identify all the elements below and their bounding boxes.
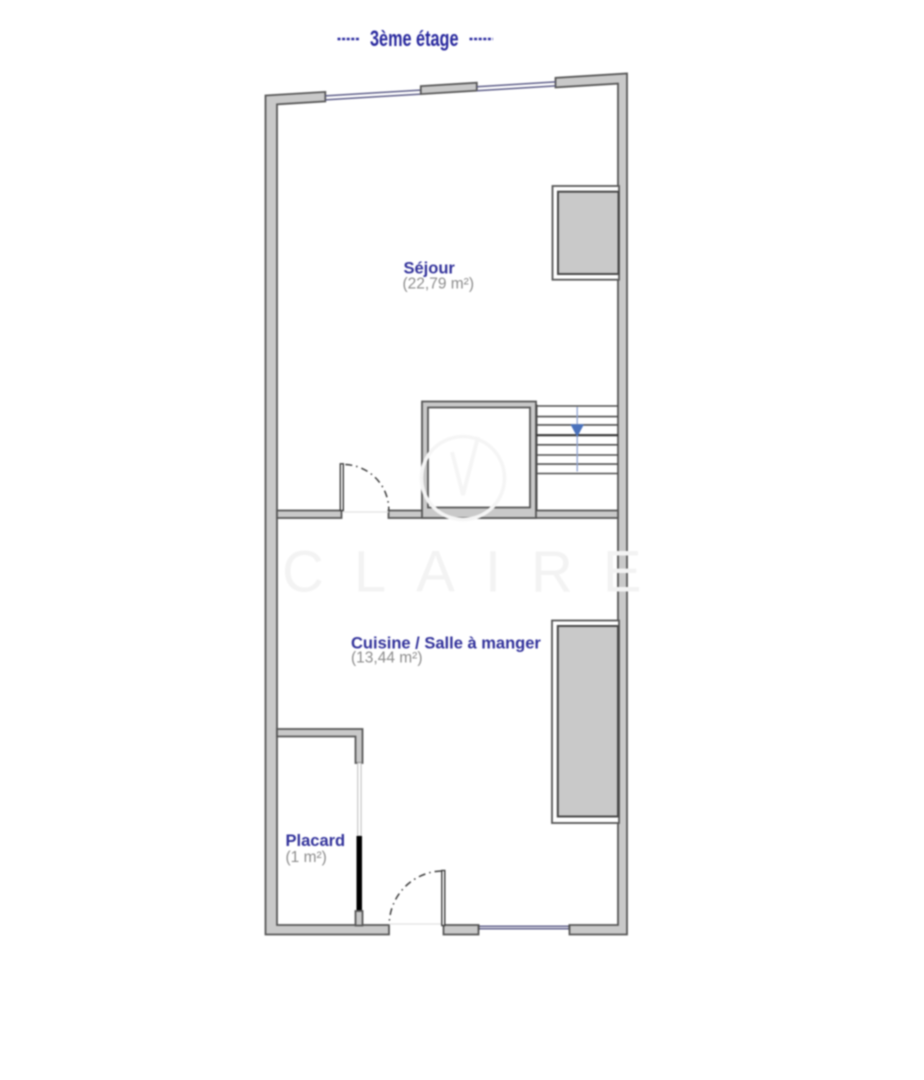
svg-text:3ème étage: 3ème étage [370,26,459,51]
svg-text:(1 m²): (1 m²) [286,849,327,866]
svg-text:CLAIRE: CLAIRE [282,540,672,605]
svg-text:Placard: Placard [286,832,346,850]
svg-text:(13,44 m²): (13,44 m²) [351,650,423,667]
svg-text:(22,79 m²): (22,79 m²) [403,276,475,293]
